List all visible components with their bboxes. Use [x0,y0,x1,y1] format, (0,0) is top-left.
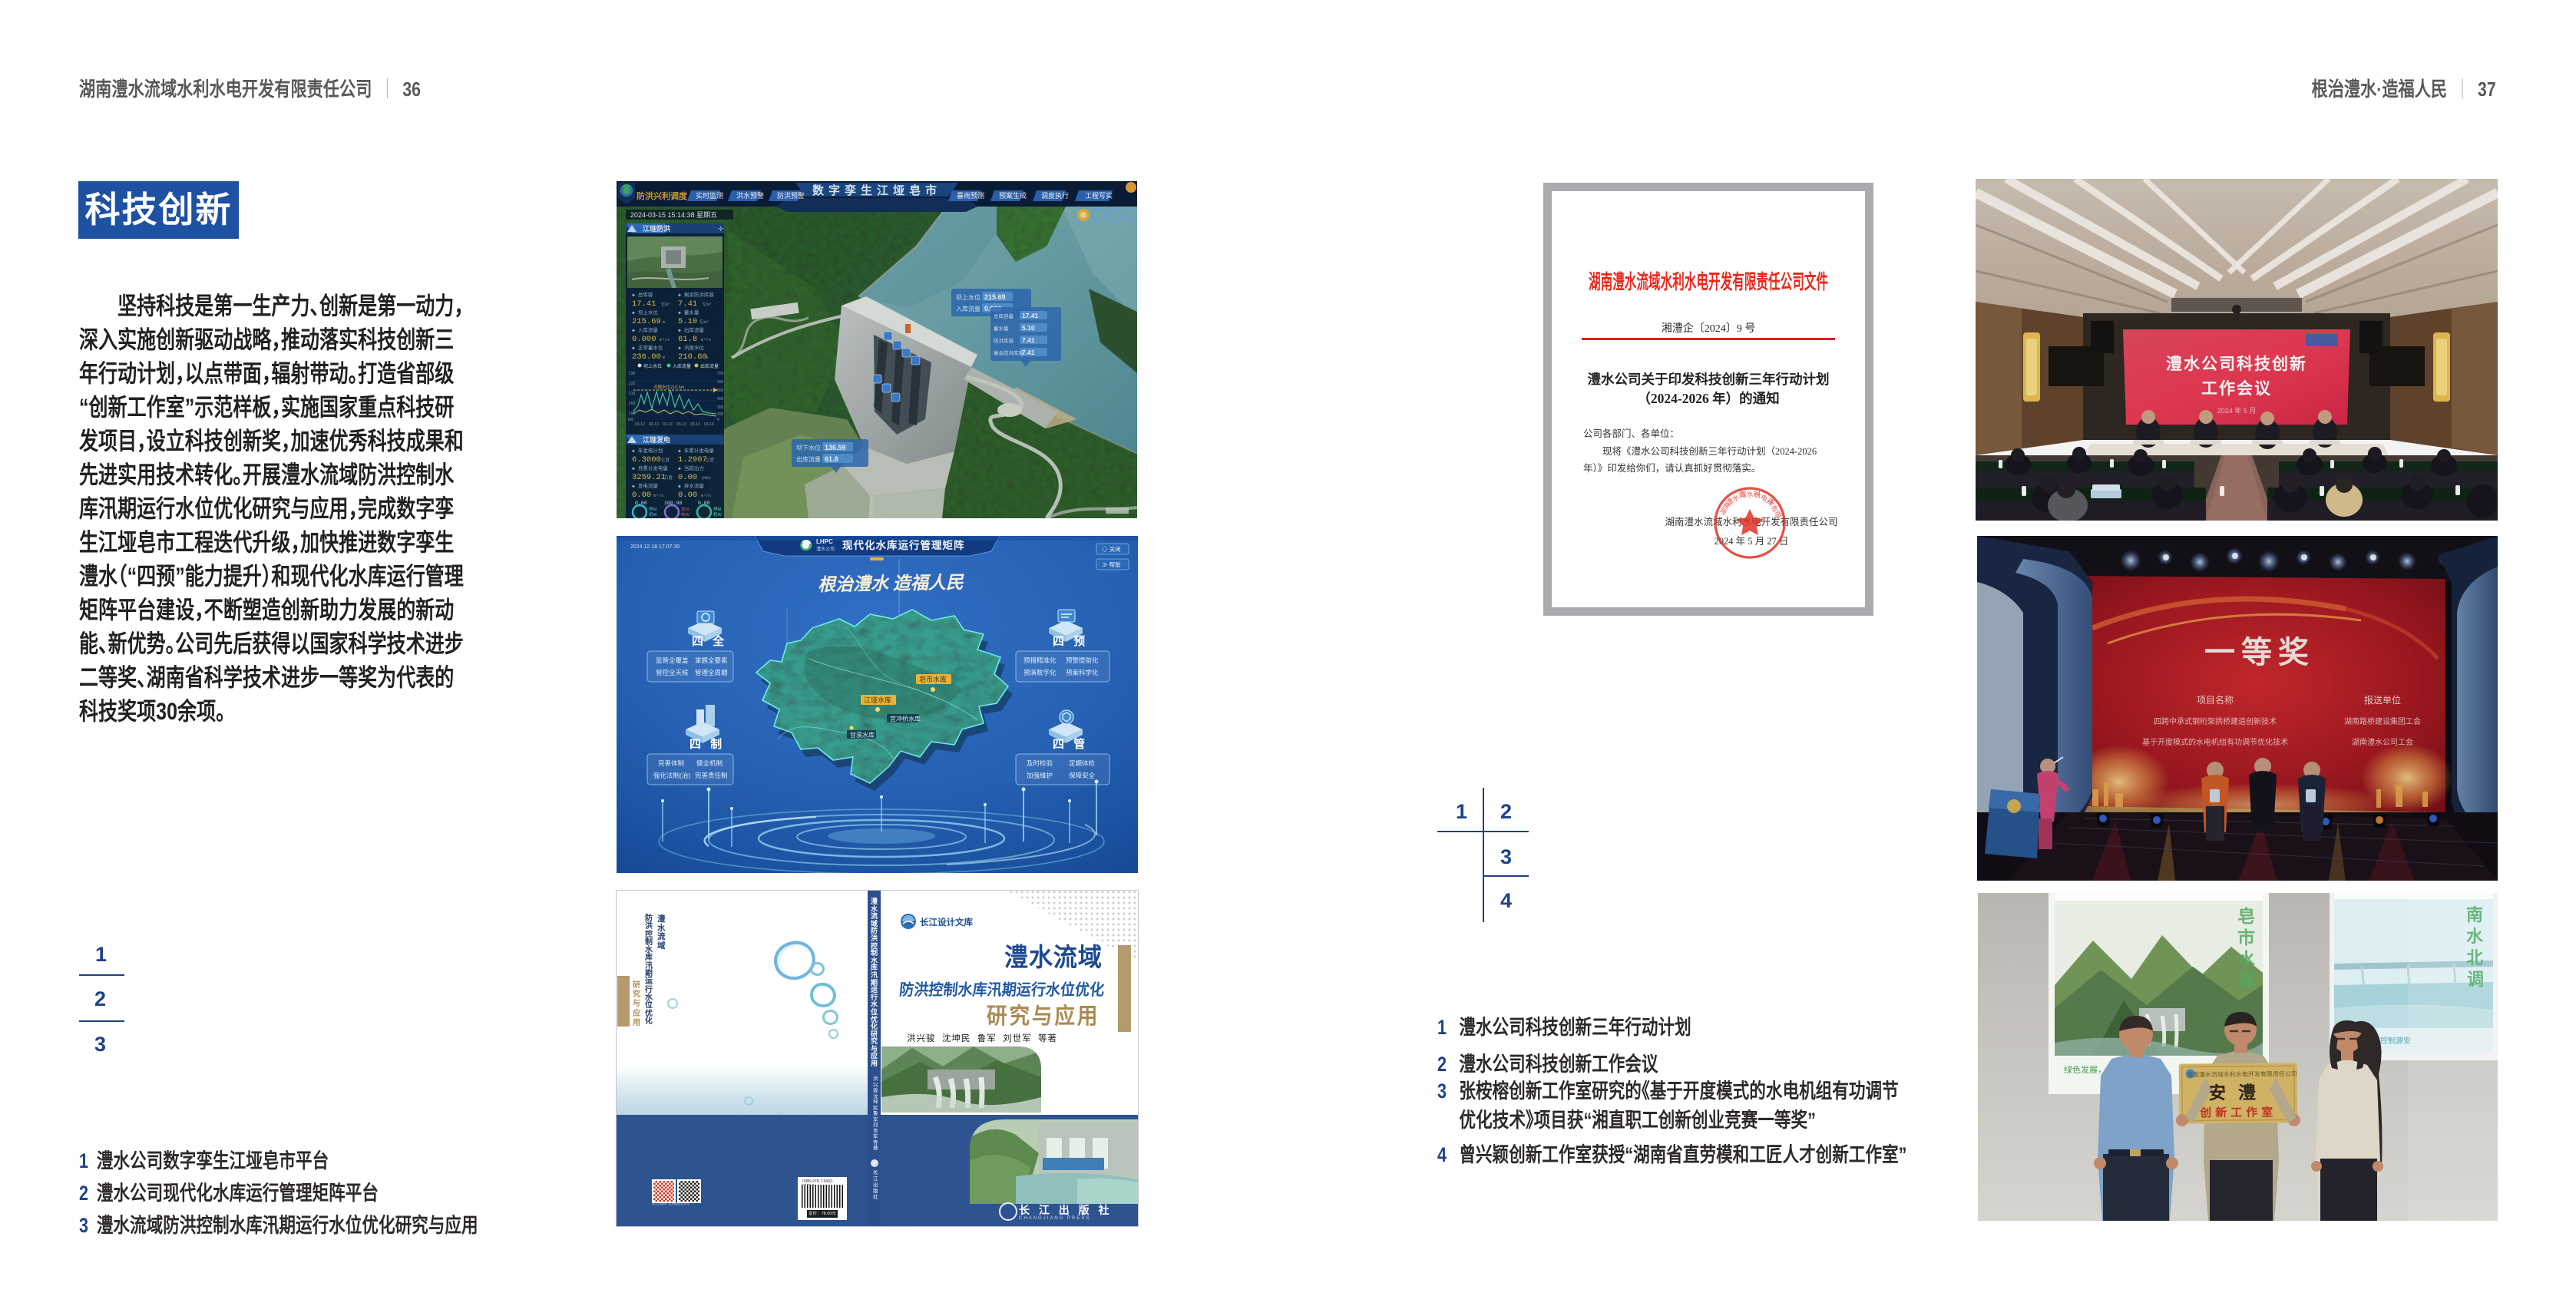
svg-text:预演数字化: 预演数字化 [1023,669,1057,676]
svg-text:健全机制: 健全机制 [696,759,723,767]
svg-text:江垭水库: 江垭水库 [864,696,891,704]
svg-text:现代化水库运行管理矩阵: 现代化水库运行管理矩阵 [842,539,965,551]
svg-text:创新工作室: 创新工作室 [2199,1106,2277,1120]
svg-text:安澧: 安澧 [2208,1083,2268,1103]
svg-text:预警提前化: 预警提前化 [1066,656,1099,664]
svg-text:管理全周期: 管理全周期 [695,669,728,676]
svg-text:市: 市 [2237,927,2255,947]
svg-text:预案科学化: 预案科学化 [1066,669,1099,676]
svg-text:库: 库 [2238,971,2256,990]
svg-text:◇ 关闭: ◇ 关闭 [1102,545,1121,553]
svg-text:及时检验: 及时检验 [1027,759,1053,767]
svg-text:澧水公司: 澧水公司 [816,546,835,552]
svg-text:皂市水库: 皂市水库 [919,675,947,683]
svg-text:预报精准化: 预报精准化 [1023,656,1057,664]
svg-text:加强维护: 加强维护 [1027,772,1053,779]
svg-text:长江设计文库: 长江设计文库 [920,917,973,927]
svg-text:强化法制(治): 强化法制(治) [653,772,690,779]
svg-text:宜冲桥水库: 宜冲桥水库 [890,715,921,722]
svg-text:定期体检: 定期体检 [1069,759,1096,767]
svg-text:完善体制: 完善体制 [658,759,684,767]
svg-text:水: 水 [2237,950,2256,969]
svg-text:四 预: 四 预 [1053,635,1088,648]
svg-text:2024.12.18 17:07:30: 2024.12.18 17:07:30 [630,544,680,550]
svg-text:皂: 皂 [2237,906,2255,926]
svg-text:四 管: 四 管 [1053,737,1088,751]
svg-text:监管全覆盖: 监管全覆盖 [656,656,689,664]
svg-text:管控全天候: 管控全天候 [656,669,689,676]
svg-text:湖南澧水流域水利水电开发有限责任公司: 湖南澧水流域水利水电开发有限责任公司 [2187,1070,2297,1078]
svg-text:完善责任制: 完善责任制 [695,772,728,779]
svg-text:掌握全要素: 掌握全要素 [695,656,728,664]
svg-text:四 制: 四 制 [689,737,725,751]
svg-text:LHPC: LHPC [816,538,833,545]
svg-text:≫ 帮助: ≫ 帮助 [1102,560,1121,568]
svg-text:保障安全: 保障安全 [1069,772,1096,779]
svg-text:甘溪水库: 甘溪水库 [850,731,875,739]
svg-text:根治澧水 造福人民: 根治澧水 造福人民 [818,573,965,594]
svg-text:四 全: 四 全 [692,634,727,648]
